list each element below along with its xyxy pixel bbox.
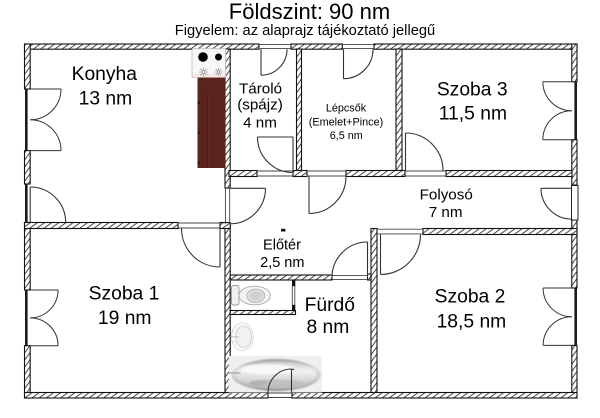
svg-text:Földszint: 90 nm: Földszint: 90 nm <box>229 0 390 24</box>
svg-text:19 nm: 19 nm <box>98 308 152 329</box>
svg-text:Konyha: Konyha <box>72 64 138 85</box>
svg-text:Szoba 2: Szoba 2 <box>435 287 506 308</box>
svg-text:Előtér: Előtér <box>263 238 301 254</box>
svg-text:4 nm: 4 nm <box>243 115 277 132</box>
svg-text:Szoba 3: Szoba 3 <box>437 79 508 100</box>
svg-text:Szoba 1: Szoba 1 <box>89 284 160 305</box>
svg-text:Figyelem: az alaprajz tájékozt: Figyelem: az alaprajz tájékoztató jelleg… <box>175 23 435 39</box>
svg-text:13 nm: 13 nm <box>79 89 133 110</box>
svg-text:6,5 nm: 6,5 nm <box>330 130 363 142</box>
svg-text:Folyosó: Folyosó <box>420 186 473 203</box>
svg-text:Fürdő: Fürdő <box>305 295 355 316</box>
svg-text:(Emelet+Pince): (Emelet+Pince) <box>309 117 384 129</box>
svg-text:18,5 nm: 18,5 nm <box>437 312 507 333</box>
svg-text:Tároló: Tároló <box>239 80 282 97</box>
svg-text:7 nm: 7 nm <box>429 204 463 221</box>
svg-text:11,5 nm: 11,5 nm <box>439 103 507 124</box>
svg-text:(spájz): (spájz) <box>237 97 283 114</box>
svg-text:8 nm: 8 nm <box>306 317 349 338</box>
svg-text:Lépcsők: Lépcsők <box>326 103 367 115</box>
svg-text:2,5 nm: 2,5 nm <box>260 255 304 271</box>
